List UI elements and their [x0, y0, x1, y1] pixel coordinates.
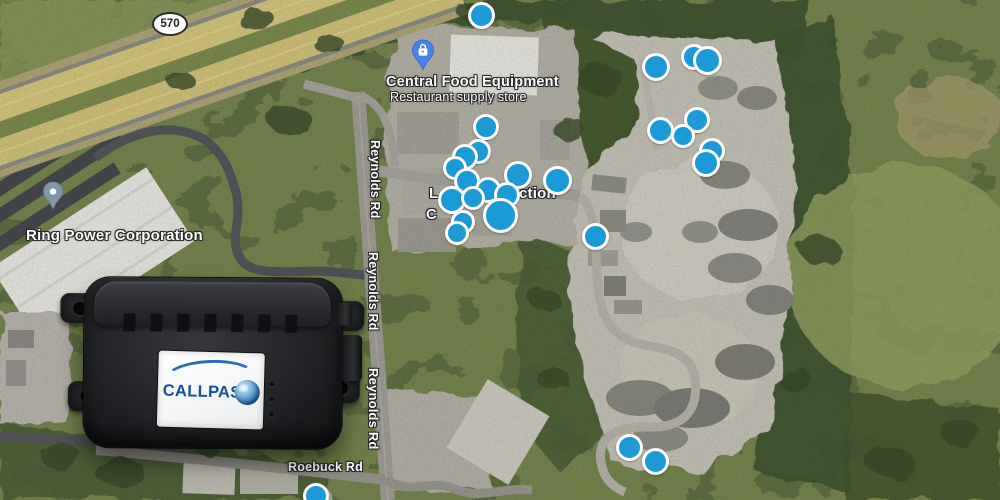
- poi-sublabel-central-food: Restaurant supply store: [390, 90, 527, 104]
- gps-location-dot[interactable]: [543, 166, 572, 195]
- obscured-poi-fragment: C: [426, 206, 437, 223]
- device-latch: [336, 303, 352, 325]
- gps-location-dot[interactable]: [693, 46, 722, 75]
- road-label-reynolds-rd: Reynolds Rd: [368, 140, 382, 219]
- road-label-reynolds-rd: Reynolds Rd: [366, 252, 380, 331]
- device-ridges: [108, 313, 300, 332]
- gps-location-dot[interactable]: [642, 53, 670, 81]
- device-body: CALLPASS: [83, 277, 342, 449]
- gps-location-dot[interactable]: [473, 114, 499, 140]
- callpass-gps-device-photo: CALLPASS: [59, 273, 366, 455]
- device-brand-label: CALLPASS: [157, 351, 265, 430]
- obscured-poi-fragment: L: [429, 185, 438, 202]
- place-map-pin-icon[interactable]: [42, 181, 64, 211]
- gps-location-dot[interactable]: [483, 198, 518, 233]
- road-label-reynolds-rd: Reynolds Rd: [366, 368, 381, 450]
- gps-location-dot[interactable]: [647, 117, 674, 144]
- poi-label-ring-power: Ring Power Corporation: [26, 227, 203, 244]
- gps-location-dot[interactable]: [582, 223, 609, 250]
- map-screenshot: 570 Central Food Equipment Restaurant su…: [0, 0, 1000, 500]
- device-indicator-dots: [270, 382, 276, 422]
- store-map-pin-icon[interactable]: [411, 39, 435, 71]
- device-connector: [340, 335, 362, 381]
- gps-location-dot[interactable]: [671, 124, 695, 148]
- gps-location-dot[interactable]: [642, 448, 669, 475]
- poi-label-central-food: Central Food Equipment: [386, 74, 559, 90]
- gps-location-dot[interactable]: [616, 434, 643, 461]
- gps-location-dot[interactable]: [468, 2, 495, 29]
- gps-location-dot[interactable]: [692, 149, 720, 177]
- gps-location-dot[interactable]: [461, 186, 485, 210]
- road-label-roebuck-rd: Roebuck Rd: [288, 460, 363, 474]
- globe-icon: [234, 380, 260, 406]
- highway-570-shield: 570: [152, 12, 188, 36]
- gps-location-dot[interactable]: [445, 221, 469, 245]
